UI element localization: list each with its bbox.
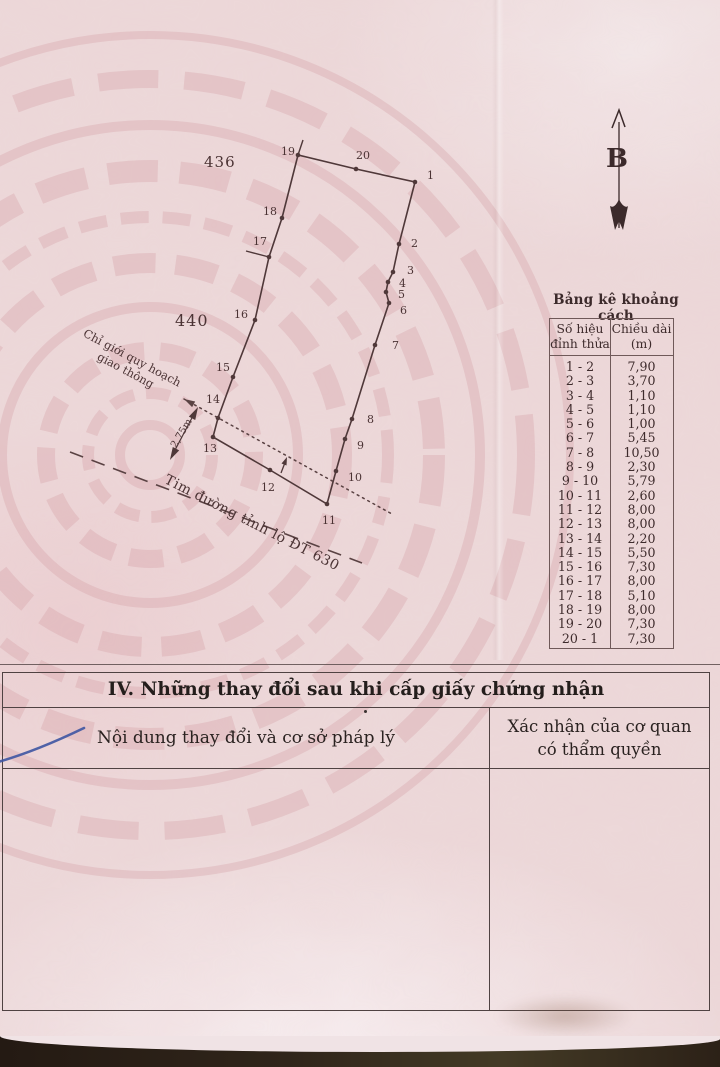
length-cell: 5,45 (610, 431, 673, 445)
distance-table-row: 8 - 92,30 (550, 460, 673, 474)
distance-table-row: 1 - 27,90 (550, 360, 673, 374)
distance-table-row: 14 - 155,50 (550, 546, 673, 560)
distance-table-row: 15 - 167,30 (550, 560, 673, 574)
distance-table-row: 18 - 198,00 (550, 603, 673, 617)
vertex-pair-cell: 5 - 6 (550, 417, 610, 431)
vertex-pair-cell: 15 - 16 (550, 560, 610, 574)
distance-table-row: 13 - 142,20 (550, 532, 673, 546)
vertex-dot (391, 270, 396, 275)
north-label: B (606, 144, 628, 174)
vertex-label: 9 (357, 439, 364, 452)
vertex-dot (350, 417, 355, 422)
vertex-label: 13 (203, 442, 217, 455)
distance-table-header-vertex: Số hiệu đỉnh thửa (550, 322, 610, 355)
certificate-page: 1234567891011121314151617181920 436 440 … (0, 0, 720, 1067)
length-cell: 8,00 (610, 603, 673, 617)
section-divider-line (0, 664, 720, 665)
distance-table-header: Số hiệu đỉnh thửa Chiều dài (m) (550, 319, 673, 356)
vertex-pair-cell: 9 - 10 (550, 474, 610, 488)
length-cell: 7,30 (610, 617, 673, 631)
vertex-label: 15 (216, 361, 230, 374)
vertex-label: 7 (392, 339, 399, 352)
vertex-dot (280, 216, 285, 221)
adjacent-parcel-label: 436 (204, 153, 236, 171)
distance-table-row: 19 - 207,30 (550, 617, 673, 631)
distance-table-row: 17 - 185,10 (550, 589, 673, 603)
vertex-pair-cell: 8 - 9 (550, 460, 610, 474)
distance-table-row: 5 - 61,00 (550, 417, 673, 431)
distance-table-row: 9 - 105,79 (550, 474, 673, 488)
length-cell: 2,30 (610, 460, 673, 474)
vertex-dot (413, 180, 418, 185)
section-iv-right-cell (490, 769, 709, 1011)
vertex-dot (268, 468, 273, 473)
stray-ink-dot (364, 710, 367, 713)
length-cell: 8,00 (610, 574, 673, 588)
vertex-label: 14 (206, 393, 220, 406)
vertex-pair-cell: 16 - 17 (550, 574, 610, 588)
vertex-pair-cell: 11 - 12 (550, 503, 610, 517)
vertex-pair-cell: 10 - 11 (550, 489, 610, 503)
distance-table-row: 2 - 33,70 (550, 374, 673, 388)
distance-table: Số hiệu đỉnh thửa Chiều dài (m) 1 - 27,9… (549, 318, 674, 649)
distance-table-column-divider (610, 319, 611, 648)
vertex-dot (211, 435, 216, 440)
vertex-label: 20 (356, 149, 370, 162)
vertex-label: 18 (263, 205, 277, 218)
length-cell: 2,60 (610, 489, 673, 503)
vertex-label: 3 (407, 264, 414, 277)
parcel-vertex-labels: 1234567891011121314151617181920 (203, 145, 434, 527)
vertex-pair-cell: 4 - 5 (550, 403, 610, 417)
vertex-label: 12 (261, 481, 275, 494)
vertex-pair-cell: 17 - 18 (550, 589, 610, 603)
length-cell: 5,10 (610, 589, 673, 603)
vertex-pair-cell: 3 - 4 (550, 389, 610, 403)
vertex-label: 16 (234, 308, 248, 321)
length-cell: 3,70 (610, 374, 673, 388)
length-cell: 2,20 (610, 532, 673, 546)
pen-mark (0, 700, 120, 780)
distance-table-row: 7 - 810,50 (550, 446, 673, 460)
vertex-pair-cell: 19 - 20 (550, 617, 610, 631)
vertex-pair-cell: 1 - 2 (550, 360, 610, 374)
vertex-pair-cell: 20 - 1 (550, 632, 610, 646)
length-cell: 7,30 (610, 560, 673, 574)
distance-table-row: 3 - 41,10 (550, 389, 673, 403)
distance-table-row: 11 - 128,00 (550, 503, 673, 517)
length-cell: 10,50 (610, 446, 673, 460)
distance-table-rows: 1 - 27,902 - 33,703 - 41,104 - 51,105 - … (550, 356, 673, 646)
section-iv-right-header: Xác nhận của cơ quan có thẩm quyền (490, 708, 709, 768)
distance-table-row: 20 - 17,30 (550, 632, 673, 646)
distance-table-header-length: Chiều dài (m) (610, 322, 673, 355)
length-cell: 8,00 (610, 503, 673, 517)
section-iv-body (3, 769, 709, 1011)
offset-pointer-arrow (281, 457, 287, 473)
vertex-dot (384, 290, 389, 295)
length-cell: 1,00 (610, 417, 673, 431)
length-cell: 7,30 (610, 632, 673, 646)
vertex-dot (386, 280, 391, 285)
vertex-pair-cell: 12 - 13 (550, 517, 610, 531)
vertex-label: 17 (253, 235, 267, 248)
parcel-polygon (213, 155, 415, 504)
vertex-label: 6 (400, 304, 407, 317)
length-cell: 1,10 (610, 403, 673, 417)
vertex-dot (325, 502, 330, 507)
vertex-dot (354, 167, 359, 172)
vertex-label: 1 (427, 169, 434, 182)
length-cell: 5,79 (610, 474, 673, 488)
distance-table-row: 10 - 112,60 (550, 489, 673, 503)
vertex-dot (397, 242, 402, 247)
distance-table-row: 12 - 138,00 (550, 517, 673, 531)
vertex-label: 11 (322, 514, 336, 527)
vertex-dot (387, 301, 392, 306)
distance-table-row: 16 - 178,00 (550, 574, 673, 588)
vertex-label: 19 (281, 145, 295, 158)
vertex-label: 10 (348, 471, 362, 484)
vertex-dot (334, 469, 339, 474)
length-cell: 1,10 (610, 389, 673, 403)
vertex-label: 2 (411, 237, 418, 250)
vertex-pair-cell: 13 - 14 (550, 532, 610, 546)
vertex-pair-cell: 18 - 19 (550, 603, 610, 617)
length-cell: 7,90 (610, 360, 673, 374)
vertex-pair-cell: 2 - 3 (550, 374, 610, 388)
vertex-label: 8 (367, 413, 374, 426)
vertex-dot (373, 343, 378, 348)
length-cell: 5,50 (610, 546, 673, 560)
vertex-dot (231, 375, 236, 380)
length-cell: 8,00 (610, 517, 673, 531)
distance-table-row: 6 - 75,45 (550, 431, 673, 445)
section-iv-left-cell (3, 769, 490, 1011)
vertex-pair-cell: 7 - 8 (550, 446, 610, 460)
vertex-pair-cell: 14 - 15 (550, 546, 610, 560)
adjacent-parcel-label: 440 (175, 311, 209, 330)
vertex-dot (253, 318, 258, 323)
vertex-dot (343, 437, 348, 442)
vertex-label: 5 (398, 288, 405, 301)
vertex-pair-cell: 6 - 7 (550, 431, 610, 445)
distance-table-row: 4 - 51,10 (550, 403, 673, 417)
shadow (495, 995, 635, 1037)
